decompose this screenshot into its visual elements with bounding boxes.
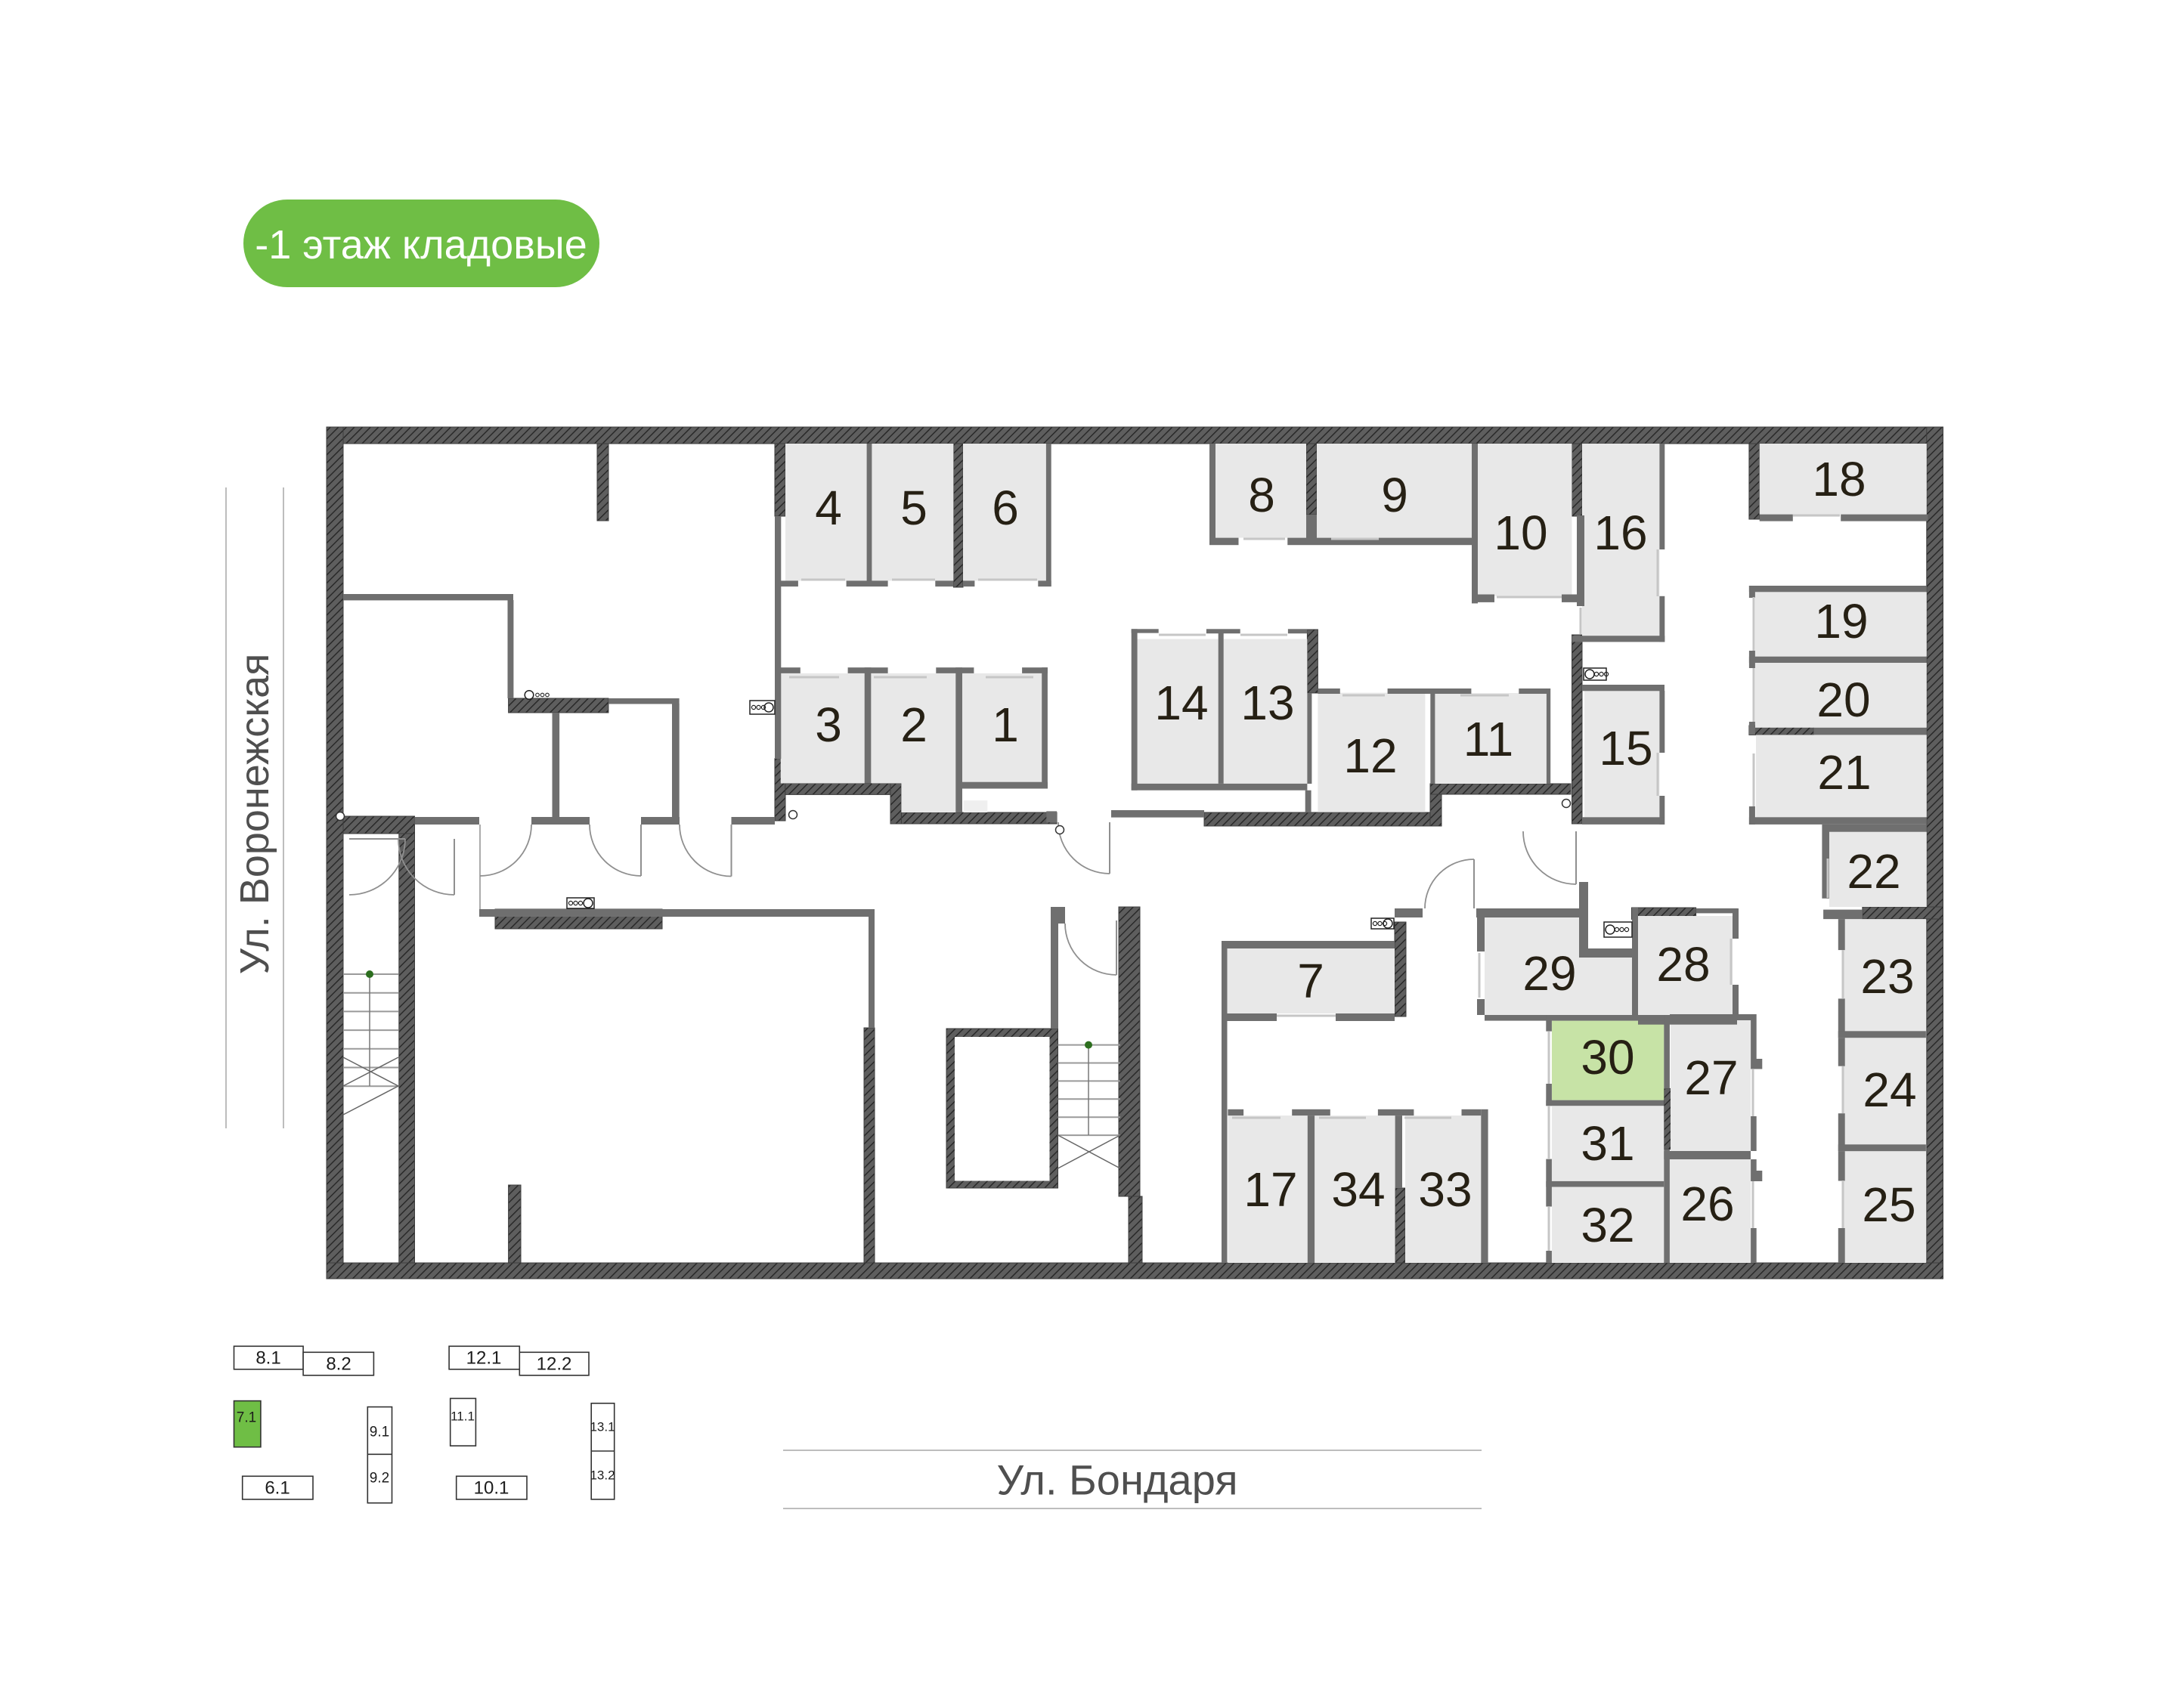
svg-text:13.1: 13.1: [590, 1420, 615, 1434]
svg-text:34: 34: [1331, 1162, 1385, 1217]
svg-text:11: 11: [1463, 712, 1513, 766]
svg-text:12.2: 12.2: [537, 1354, 572, 1375]
svg-text:9: 9: [1381, 468, 1408, 522]
svg-text:13: 13: [1240, 676, 1294, 730]
svg-text:1: 1: [992, 698, 1019, 752]
svg-text:16: 16: [1593, 506, 1647, 560]
svg-text:22: 22: [1847, 844, 1900, 899]
svg-text:23: 23: [1860, 949, 1914, 1004]
svg-text:11.1: 11.1: [451, 1409, 475, 1424]
svg-text:26: 26: [1680, 1177, 1734, 1231]
svg-text:25: 25: [1862, 1177, 1915, 1232]
svg-text:14: 14: [1154, 676, 1208, 730]
svg-text:24: 24: [1863, 1063, 1916, 1117]
svg-text:9.2: 9.2: [370, 1471, 389, 1487]
svg-text:15: 15: [1599, 721, 1652, 775]
svg-text:10.1: 10.1: [474, 1478, 509, 1499]
svg-text:6.1: 6.1: [265, 1478, 290, 1499]
svg-text:13.2: 13.2: [590, 1468, 615, 1483]
svg-text:7: 7: [1297, 954, 1324, 1008]
svg-text:12: 12: [1343, 729, 1397, 783]
svg-text:5: 5: [900, 481, 927, 535]
svg-text:-1 этаж кладовые: -1 этаж кладовые: [255, 222, 587, 268]
svg-text:20: 20: [1816, 673, 1870, 727]
svg-text:6: 6: [992, 481, 1019, 535]
svg-text:31: 31: [1581, 1116, 1634, 1171]
svg-text:8.2: 8.2: [326, 1354, 351, 1375]
svg-text:21: 21: [1817, 745, 1871, 800]
svg-text:28: 28: [1656, 937, 1710, 992]
svg-text:10: 10: [1494, 506, 1547, 560]
svg-text:8.1: 8.1: [255, 1348, 280, 1369]
svg-text:2: 2: [900, 698, 927, 752]
svg-text:4: 4: [815, 481, 842, 535]
svg-text:8: 8: [1248, 468, 1275, 522]
svg-text:3: 3: [815, 698, 842, 752]
svg-text:30: 30: [1581, 1030, 1634, 1085]
svg-text:18: 18: [1812, 452, 1866, 506]
svg-text:29: 29: [1522, 946, 1576, 1001]
svg-text:Ул. Воронежская: Ул. Воронежская: [232, 654, 277, 975]
svg-text:19: 19: [1814, 594, 1868, 648]
svg-text:32: 32: [1581, 1198, 1634, 1252]
svg-text:17: 17: [1243, 1162, 1297, 1217]
svg-text:12.1: 12.1: [466, 1348, 502, 1369]
svg-text:27: 27: [1684, 1050, 1738, 1105]
svg-text:9.1: 9.1: [370, 1425, 389, 1440]
svg-text:7.1: 7.1: [237, 1410, 256, 1426]
svg-text:33: 33: [1418, 1162, 1472, 1217]
svg-text:Ул. Бондаря: Ул. Бондаря: [996, 1456, 1237, 1504]
